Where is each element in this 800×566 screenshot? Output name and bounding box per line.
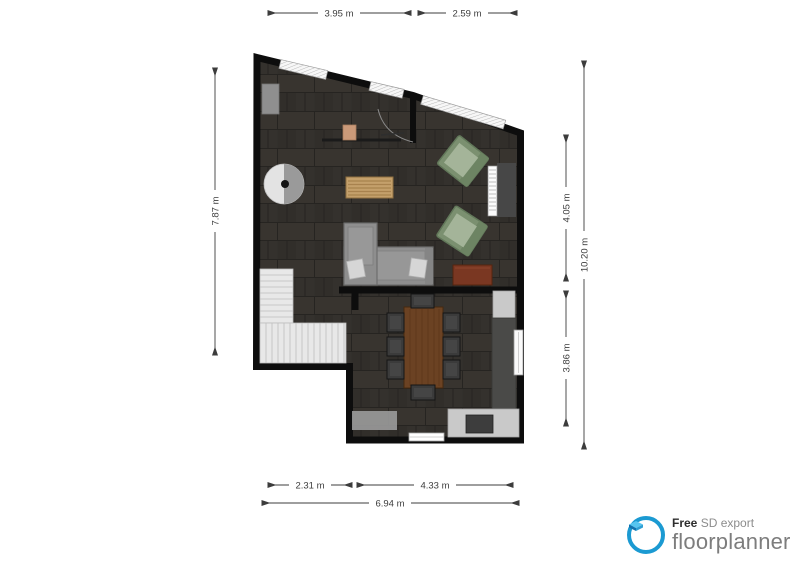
right-wall-window [514,330,523,375]
dimension-left-1: 7.87 m [209,68,222,355]
logo-export-label: SD export [701,516,754,530]
dimension-bottom-1: 2.31 m [268,479,352,492]
dining-chair-right-3 [443,360,460,379]
radiator [488,163,516,217]
dining-chair-top [411,294,434,308]
dimension-label: 3.95 m [324,9,353,20]
floorplanner-logo-icon [627,516,665,554]
dimension-label: 4.33 m [420,481,449,492]
desk-stool [343,125,356,140]
dimension-label: 10.20 m [580,238,591,272]
sideboard [453,265,492,285]
logo-free-label: Free [672,516,697,530]
dining-chair-left-2 [387,337,404,356]
dimension-label: 7.87 m [211,196,222,225]
sofa-pillow-left [347,259,366,280]
dimension-right-1: 4.05 m [560,135,573,281]
kitchen-counter-upper [493,291,515,318]
cooktop [466,415,493,433]
sofa-pillow-right [409,258,427,278]
coffee-table [346,177,393,198]
dining-table [404,307,443,388]
dimension-top-2: 2.59 m [418,7,517,20]
dining-chair-right-1 [443,313,460,332]
dining-chair-left-3 [387,360,404,379]
dimension-bottom-2: 4.33 m [357,479,513,492]
dining-chair-right-2 [443,337,460,356]
kitchen-tall-unit [492,318,516,409]
dimension-label: 3.86 m [562,343,573,372]
dimension-label: 4.05 m [562,193,573,222]
doormat [352,411,397,430]
wall-cabinet [262,84,279,114]
dimension-bottom-3: 6.94 m [262,497,519,510]
dimension-right-2: 3.86 m [560,291,573,426]
dining-chair-left-1 [387,313,404,332]
dimension-label: 2.59 m [452,9,481,20]
floorplan-export-canvas: 3.95 m 2.59 m 7.87 m 4.05 m [0,0,800,566]
dining-chair-bottom [411,385,435,400]
back-door [409,433,444,441]
dimension-top-1: 3.95 m [268,7,411,20]
isometric-furniture-icon [627,516,645,534]
floorplan-drawing: 3.95 m 2.59 m 7.87 m 4.05 m [0,0,800,566]
dimension-right-3: 10.20 m [578,61,591,449]
dimension-label: 2.31 m [295,481,324,492]
logo-export-line: Free SD export [672,517,791,530]
round-side-table [264,164,304,204]
logo-brand-text: floorplanner [672,530,791,553]
floorplanner-logo: Free SD export floorplanner [627,516,791,554]
dimension-label: 6.94 m [375,499,404,510]
logo-text-block: Free SD export floorplanner [672,517,791,554]
